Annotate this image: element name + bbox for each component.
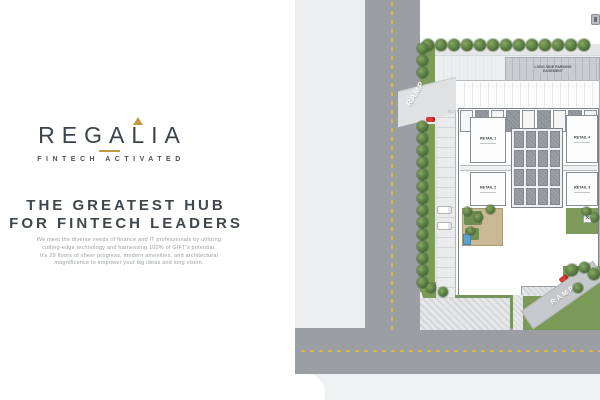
tree-icon bbox=[417, 145, 428, 156]
tree-icon bbox=[461, 39, 473, 51]
tree-icon bbox=[565, 39, 577, 51]
tree-icon bbox=[417, 241, 428, 252]
tree-icon bbox=[539, 39, 551, 51]
page: REGALIA FINTECH ACTIVATED THE GREATEST H… bbox=[0, 0, 600, 400]
headline: THE GREATEST HUB FOR FINTECH LEADERS bbox=[0, 197, 252, 233]
tree-icon bbox=[417, 253, 428, 264]
paragraph-line: magnificence to empower your big ideas a… bbox=[16, 260, 242, 268]
tree-icon bbox=[474, 213, 483, 222]
tree-icon bbox=[588, 268, 600, 280]
lane-divider-vertical bbox=[391, 2, 393, 332]
tree-icon bbox=[417, 181, 428, 192]
left-panel: REGALIA FINTECH ACTIVATED THE GREATEST H… bbox=[0, 0, 295, 400]
tree-icon bbox=[417, 169, 428, 180]
tree-icon bbox=[417, 265, 428, 276]
tree-icon bbox=[566, 264, 578, 276]
tree-icon bbox=[438, 287, 448, 297]
tree-icon bbox=[435, 39, 447, 51]
gold-underline bbox=[99, 150, 120, 152]
central-core bbox=[511, 128, 563, 208]
tree-icon bbox=[578, 39, 590, 51]
retail-unit-4: RETAIL 4 bbox=[566, 115, 598, 163]
paragraph-line: It's 29 floors of sheer progress, modern… bbox=[16, 253, 242, 261]
tree-icon bbox=[426, 283, 436, 293]
tree-icon bbox=[582, 207, 591, 216]
gold-apex-icon bbox=[133, 117, 143, 125]
intro-paragraph: We meet the diverse needs of finance and… bbox=[16, 237, 242, 268]
tree-icon bbox=[417, 43, 428, 54]
parked-car-icon bbox=[437, 222, 452, 230]
brand-logo: REGALIA FINTECH ACTIVATED bbox=[0, 122, 218, 163]
brand-tagline: FINTECH ACTIVATED bbox=[0, 156, 218, 163]
tree-icon bbox=[474, 39, 486, 51]
parking-label: LONG SIDE PARKING EASEMENT bbox=[534, 66, 571, 74]
water-feature bbox=[463, 234, 471, 245]
compass-icon bbox=[591, 14, 600, 25]
tree-icon bbox=[513, 39, 525, 51]
slope-label: SLOPE bbox=[448, 110, 463, 114]
tree-icon bbox=[417, 133, 428, 144]
tree-icon bbox=[417, 193, 428, 204]
tree-icon bbox=[417, 121, 428, 132]
tree-icon bbox=[417, 229, 428, 240]
site-plan: LONG SIDE PARKING EASEMENT RETAIL 1 RETA… bbox=[295, 0, 600, 400]
tree-icon bbox=[590, 213, 599, 222]
top-margin bbox=[420, 0, 600, 44]
tree-icon bbox=[417, 55, 428, 66]
tree-icon bbox=[486, 205, 495, 214]
tree-icon bbox=[552, 39, 564, 51]
tree-icon bbox=[573, 283, 583, 293]
tree-icon bbox=[487, 39, 499, 51]
tree-icon bbox=[526, 39, 538, 51]
parking-stalls bbox=[436, 108, 455, 298]
paragraph-line: cutting-edge technology and harnessing 1… bbox=[16, 245, 242, 253]
tree-icon bbox=[417, 217, 428, 228]
parked-car-icon bbox=[437, 206, 452, 214]
building-roof-stripes bbox=[457, 82, 599, 107]
retail-unit-3: RETAIL 3 bbox=[566, 172, 598, 206]
road-corner-curve bbox=[333, 300, 365, 328]
tree-icon bbox=[417, 205, 428, 216]
retail-unit-2: RETAIL 2 bbox=[470, 172, 506, 206]
tree-icon bbox=[500, 39, 512, 51]
surface-parking-strip: LONG SIDE PARKING EASEMENT bbox=[505, 57, 600, 82]
tree-icon bbox=[467, 227, 475, 235]
tree-icon bbox=[417, 67, 428, 78]
brand-name: REGALIA bbox=[31, 122, 187, 149]
red-car-icon bbox=[426, 117, 435, 122]
tree-icon bbox=[417, 157, 428, 168]
south-pavement bbox=[295, 374, 600, 400]
lane-divider-horizontal bbox=[301, 350, 600, 352]
headline-line-2: FOR FINTECH LEADERS bbox=[0, 215, 252, 233]
headline-line-1: THE GREATEST HUB bbox=[0, 197, 252, 215]
tree-icon bbox=[463, 207, 472, 216]
dropoff-pavement bbox=[420, 298, 510, 330]
paragraph-line: We meet the diverse needs of finance and… bbox=[16, 237, 242, 245]
tree-icon bbox=[448, 39, 460, 51]
retail-unit-1: RETAIL 1 bbox=[470, 117, 506, 163]
